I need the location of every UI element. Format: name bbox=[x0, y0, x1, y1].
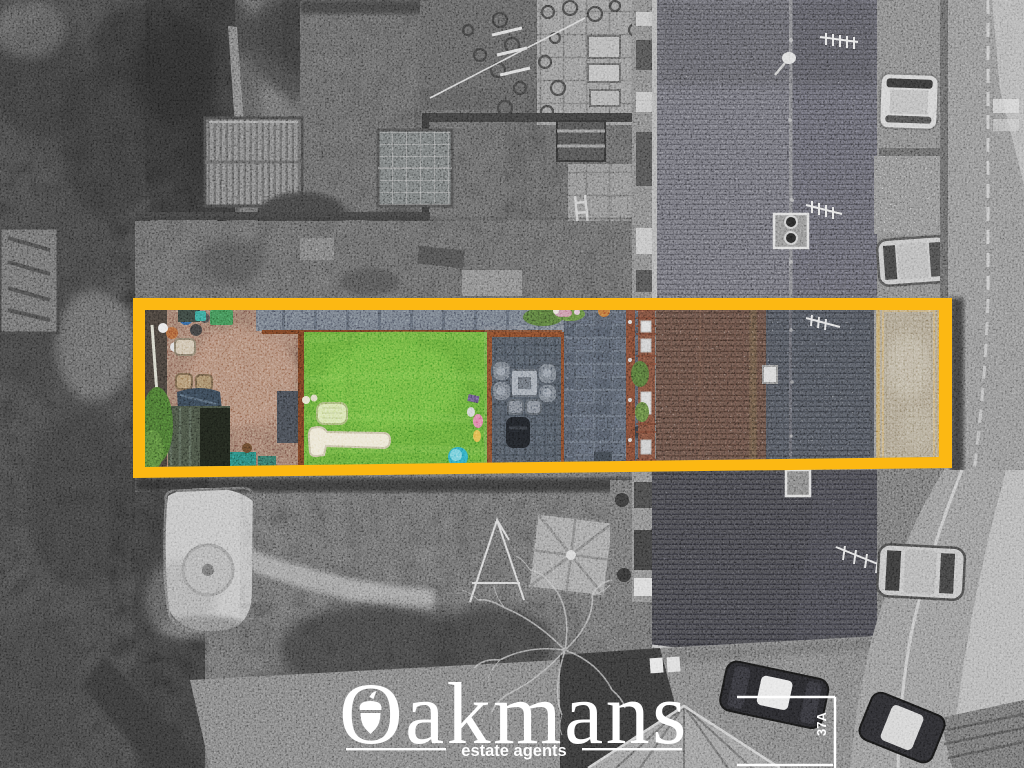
svg-text:estate agents: estate agents bbox=[461, 742, 566, 760]
svg-text:37A: 37A bbox=[814, 711, 829, 735]
